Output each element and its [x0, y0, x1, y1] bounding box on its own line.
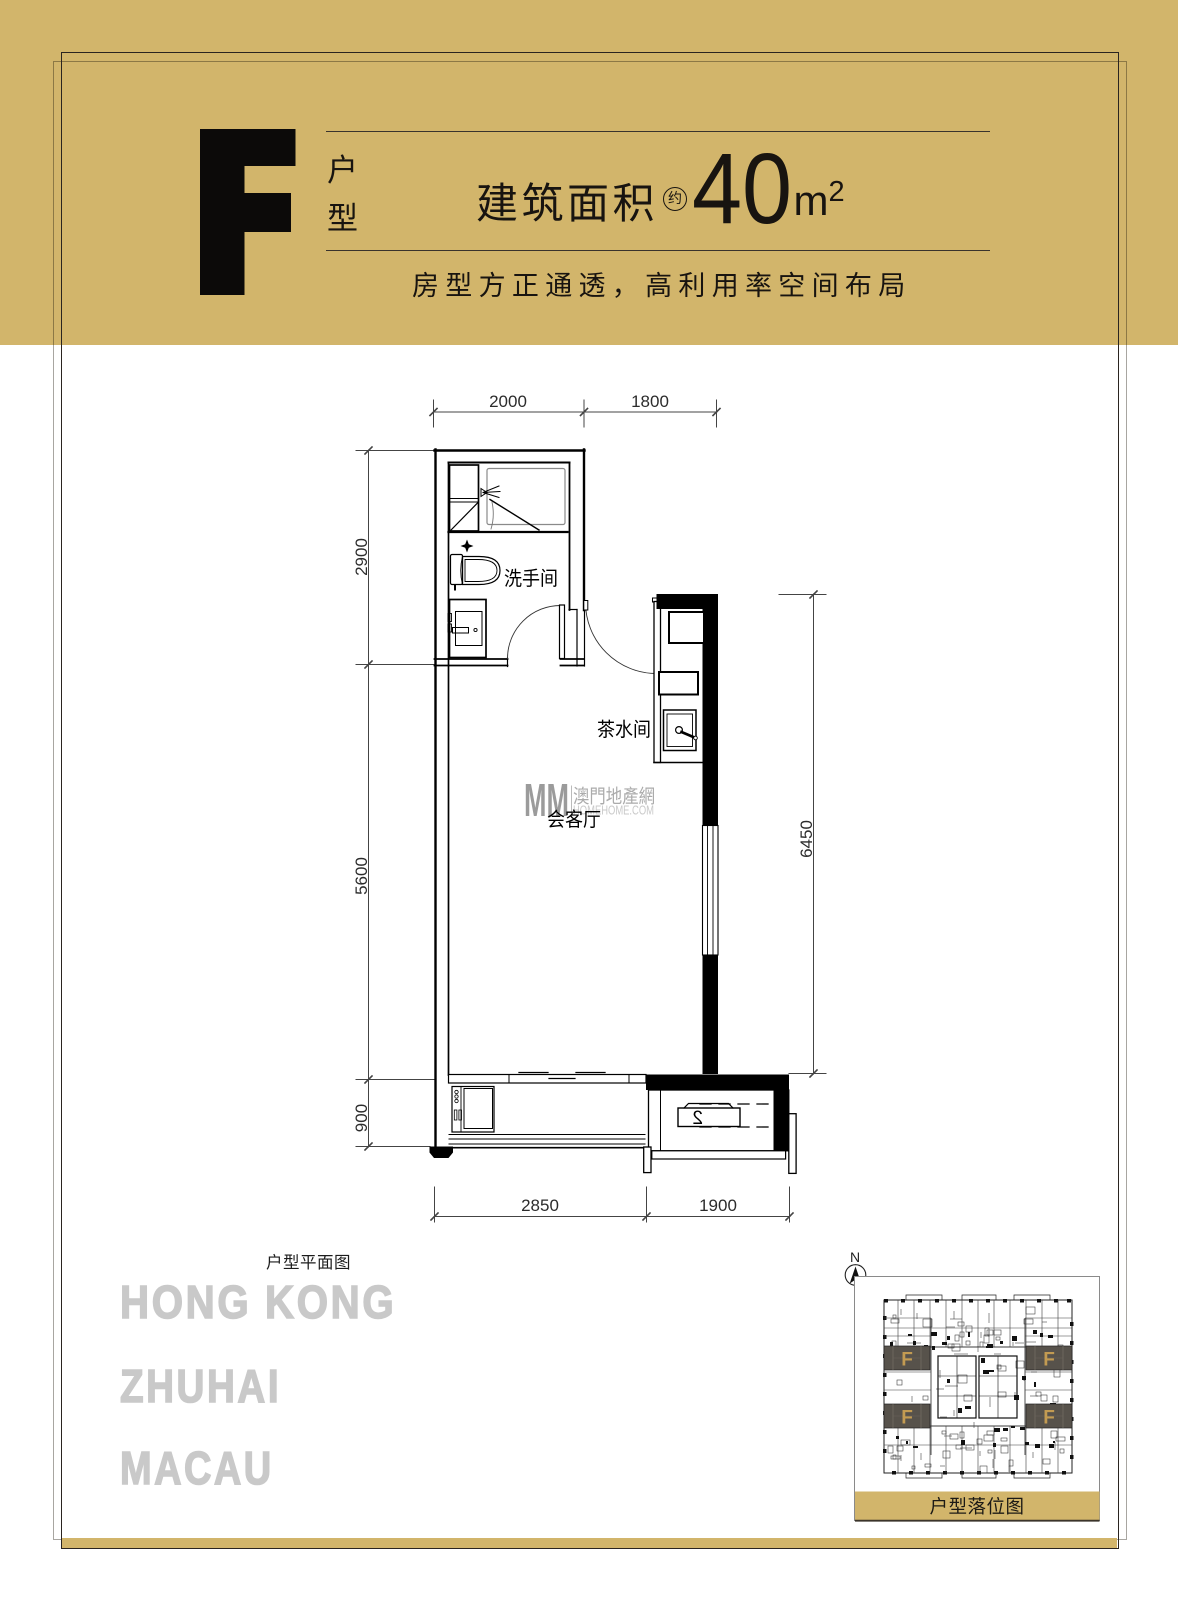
svg-text:900: 900	[352, 1104, 371, 1132]
svg-text:5600: 5600	[352, 857, 371, 895]
svg-text:F: F	[1043, 1350, 1055, 1371]
svg-text:N: N	[850, 1249, 860, 1265]
svg-text:1900: 1900	[699, 1196, 737, 1215]
svg-text:1800: 1800	[631, 392, 669, 411]
svg-text:2850: 2850	[521, 1196, 559, 1215]
svg-text:洗手间: 洗手间	[504, 568, 558, 590]
svg-text:户型落位图: 户型落位图	[929, 1496, 1024, 1517]
svg-text:F: F	[1043, 1408, 1055, 1429]
svg-text:茶水间: 茶水间	[597, 719, 651, 741]
svg-text:F: F	[901, 1350, 913, 1371]
svg-text:2000: 2000	[489, 392, 527, 411]
svg-text:2900: 2900	[352, 538, 371, 576]
svg-text:F: F	[901, 1408, 913, 1429]
svg-text:2: 2	[692, 1108, 703, 1129]
svg-text:6450: 6450	[797, 820, 816, 858]
svg-text:会客厅: 会客厅	[547, 809, 601, 831]
